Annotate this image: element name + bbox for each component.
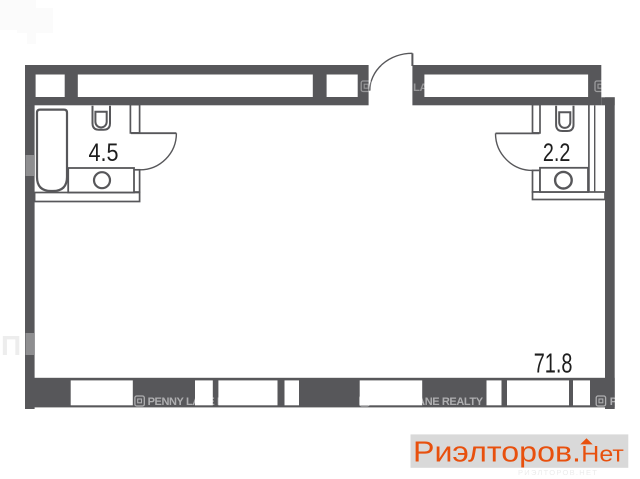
svg-text:PE: PE [610,396,624,408]
svg-text:РИЭЛТОРОВ.НЕТ: РИЭЛТОРОВ.НЕТ [518,468,598,477]
svg-text:Риэлторов.: Риэлторов. [413,436,581,468]
svg-text:PENNY LANE REALTY: PENNY LANE REALTY [373,396,484,408]
svg-text:П: П [1,330,21,361]
svg-text:2.2: 2.2 [543,139,571,167]
svg-text:71.8: 71.8 [534,348,573,379]
svg-text:PENNY LANE REALTY: PENNY LANE REALTY [148,396,259,408]
svg-text:4.5: 4.5 [89,139,119,167]
svg-text:PENNY LANE REALTY: PENNY LANE REALTY [375,82,486,94]
svg-text:Нет: Нет [581,441,624,466]
